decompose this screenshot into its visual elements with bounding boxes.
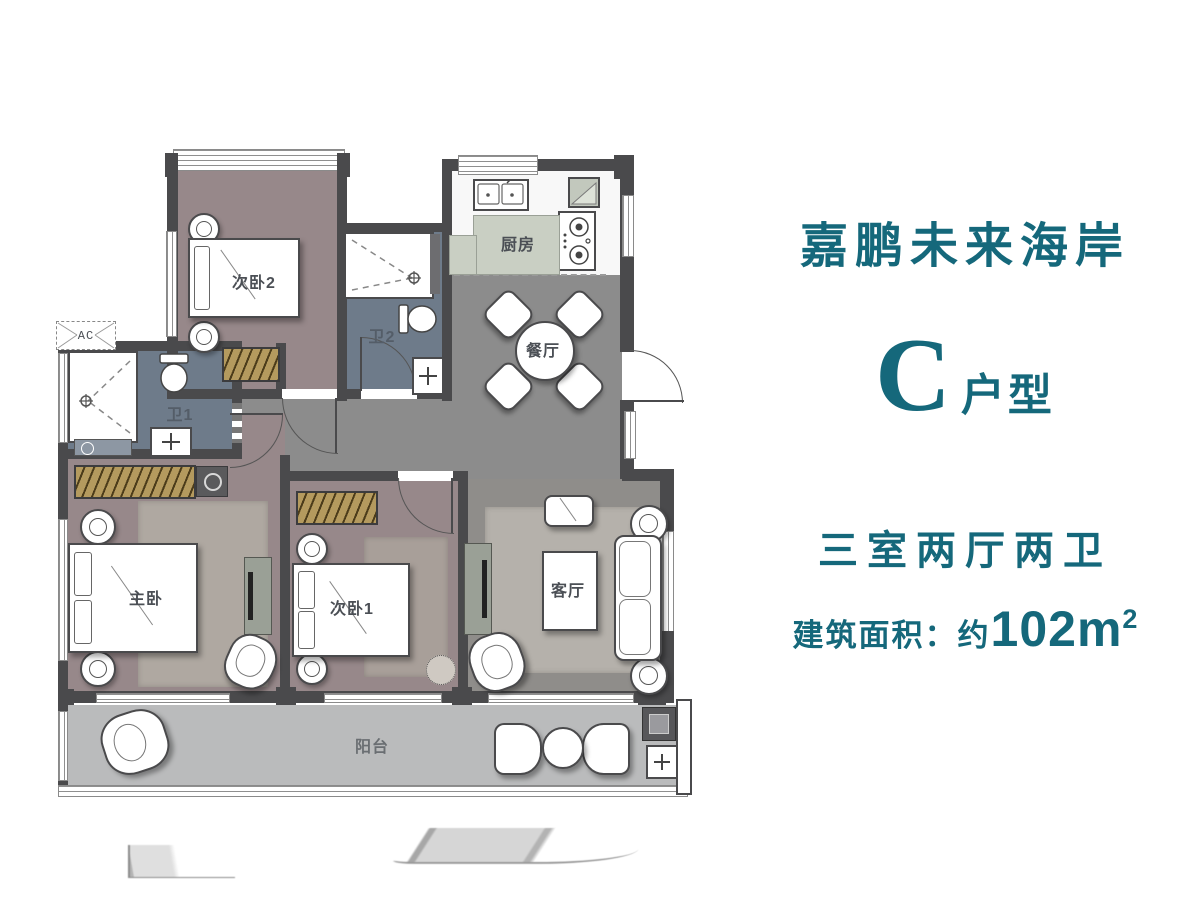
- master-window: [58, 519, 68, 661]
- master-nightstand: [80, 509, 116, 545]
- living-side-window: [662, 531, 674, 635]
- bath2-shower: [344, 232, 434, 299]
- bath1-sink: [150, 427, 192, 457]
- ac-label: AC: [78, 329, 94, 343]
- bedroom2-nightstand: [188, 321, 220, 353]
- ac-platform: AC: [56, 321, 116, 350]
- bedroom1-label: 次卧1: [330, 595, 374, 619]
- kitchen-label: 厨房: [501, 231, 535, 255]
- wall: [280, 455, 290, 695]
- kitchen-fridge: [568, 177, 600, 208]
- kitchen-sink: [473, 179, 529, 211]
- bath2-glass: [430, 234, 440, 294]
- living-round-table: [630, 657, 668, 695]
- bedroom2-bay-window: [173, 149, 345, 171]
- balcony-left-rail: [58, 711, 68, 781]
- floor-plan: AC 次卧2 卫2 厨房 餐厅 卫1 主卧 次卧1 客厅 阳台: [30, 95, 760, 895]
- area-superscript: 2: [1122, 604, 1137, 635]
- bedroom1-wardrobe: [296, 491, 378, 525]
- wall-corner: [452, 687, 472, 705]
- master-tv-cabinet: [244, 557, 272, 635]
- kitchen-stove: [558, 211, 596, 271]
- balcony-chair: [582, 723, 630, 775]
- wall-corner: [276, 687, 296, 705]
- page: AC 次卧2 卫2 厨房 餐厅 卫1 主卧 次卧1 客厅 阳台 嘉鹏未来海岸 C…: [0, 0, 1200, 900]
- area-prefix: 建筑面积：约: [793, 610, 991, 655]
- bath1-label: 卫1: [167, 401, 194, 425]
- living-balcony-slider: [488, 693, 634, 703]
- layout-summary: 三室两厅两卫: [758, 518, 1172, 576]
- project-title: 嘉鹏未来海岸: [758, 206, 1172, 276]
- kitchen-window: [458, 155, 538, 175]
- area-line: 建筑面积：约 102m 2: [758, 600, 1172, 658]
- bedroom1-nightstand: [296, 533, 328, 565]
- bath2-sink: [412, 357, 444, 395]
- master-side-unit: [196, 466, 228, 497]
- bedroom2-door-leaf: [335, 398, 337, 453]
- master-nightstand: [80, 651, 116, 687]
- area-value: 102m: [991, 600, 1123, 658]
- bedroom1-door-leaf: [451, 478, 453, 533]
- bath2-door-leaf: [360, 337, 362, 391]
- entry-side-window2: [624, 411, 636, 459]
- living-tv-cabinet: [464, 543, 492, 635]
- bath1-counter: [74, 439, 132, 456]
- wall: [337, 223, 452, 232]
- balcony-rail: [58, 785, 688, 797]
- master-balcony-slider: [96, 693, 230, 703]
- entry-door-leaf: [630, 400, 684, 402]
- unit-type-line: C 户型: [758, 322, 1172, 427]
- entry-door-arc: [630, 350, 683, 403]
- kitchen-cabinet: [449, 235, 477, 275]
- master-door-leaf: [230, 413, 283, 415]
- sketch-artifact: [392, 828, 649, 864]
- bedroom1-pouf: [426, 655, 456, 685]
- bedroom2-side-window: [166, 231, 177, 337]
- master-wardrobe: [74, 465, 196, 499]
- balcony-right-column: [676, 699, 692, 795]
- master-label: 主卧: [129, 585, 163, 609]
- bath1-toilet: [152, 353, 196, 395]
- bath1-shower: [68, 351, 138, 443]
- entry-side-window: [622, 195, 634, 257]
- bath2-toilet: [398, 297, 438, 341]
- bedroom2-label: 次卧2: [232, 269, 276, 293]
- living-label: 客厅: [551, 577, 585, 601]
- bath1-window: [58, 353, 68, 443]
- unit-suffix: 户型: [961, 359, 1055, 423]
- bedroom2-wardrobe: [222, 347, 280, 382]
- living-sofa: [614, 535, 662, 661]
- balcony-washer: [642, 707, 676, 741]
- dining-label: 餐厅: [526, 337, 560, 361]
- sketch-artifact: [128, 845, 235, 878]
- living-side-table: [544, 495, 594, 527]
- balcony-chair: [494, 723, 542, 775]
- bedroom1-balcony-slider: [324, 693, 442, 703]
- shower-symbol: [346, 234, 432, 297]
- unit-letter: C: [875, 322, 951, 427]
- balcony-table: [542, 727, 584, 769]
- balcony-sink: [646, 745, 678, 779]
- balcony-label: 阳台: [355, 733, 389, 757]
- bedroom1-nightstand: [296, 653, 328, 685]
- bath2-label: 卫2: [369, 323, 396, 347]
